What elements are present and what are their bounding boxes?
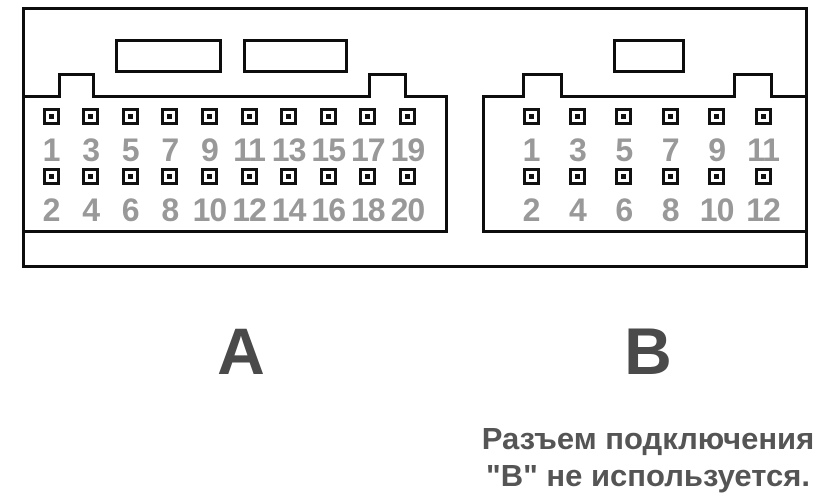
pin-b-1	[523, 108, 540, 125]
pin-b-12	[755, 168, 772, 185]
pin-b-9	[708, 108, 725, 125]
pin-b-6	[615, 168, 632, 185]
pin-b-5	[615, 108, 632, 125]
connector-a-latch-left	[58, 73, 95, 98]
pin-number-b-9: 9	[693, 134, 741, 166]
pin-a-19	[399, 108, 416, 125]
note-line-1: Разъем подключения	[448, 420, 833, 457]
pin-number-a-19: 19	[383, 134, 431, 166]
pin-number-b-3: 3	[553, 134, 601, 166]
pin-a-20	[399, 168, 416, 185]
connector-a-latch-right	[368, 73, 407, 98]
pin-a-13	[280, 108, 297, 125]
connector-a-label: A	[181, 318, 301, 384]
pin-b-2	[523, 168, 540, 185]
pin-b-4	[569, 168, 586, 185]
pin-a-2	[43, 168, 60, 185]
pin-a-8	[161, 168, 178, 185]
pin-number-b-10: 10	[693, 194, 741, 226]
pin-a-9	[201, 108, 218, 125]
connector-a-key-slot-2	[243, 39, 348, 73]
pin-a-7	[161, 108, 178, 125]
pin-a-10	[201, 168, 218, 185]
pin-a-3	[82, 108, 99, 125]
pin-number-b-12: 12	[739, 194, 787, 226]
pin-number-b-8: 8	[646, 194, 694, 226]
connector-b-latch-right	[733, 73, 773, 98]
pin-number-b-6: 6	[600, 194, 648, 226]
pin-a-11	[241, 108, 258, 125]
pin-b-10	[708, 168, 725, 185]
pin-number-a-20: 20	[383, 194, 431, 226]
pin-a-5	[122, 108, 139, 125]
pin-a-14	[280, 168, 297, 185]
note-text: Разъем подключения "В" не используется.	[448, 420, 833, 494]
pin-a-1	[43, 108, 60, 125]
pin-a-6	[122, 168, 139, 185]
pin-b-3	[569, 108, 586, 125]
pin-number-b-11: 11	[739, 134, 787, 166]
pin-b-11	[755, 108, 772, 125]
pin-a-15	[320, 108, 337, 125]
pin-a-12	[241, 168, 258, 185]
pin-a-16	[320, 168, 337, 185]
connector-b-label: B	[588, 318, 708, 384]
pin-number-b-1: 1	[507, 134, 555, 166]
pin-number-b-4: 4	[553, 194, 601, 226]
pin-b-7	[662, 108, 679, 125]
connector-a-key-slot-1	[115, 39, 222, 73]
pin-b-8	[662, 168, 679, 185]
connector-b-key-slot	[613, 39, 685, 73]
note-line-2: "В" не используется.	[448, 457, 833, 494]
pin-a-4	[82, 168, 99, 185]
pin-a-17	[359, 108, 376, 125]
pin-number-b-2: 2	[507, 194, 555, 226]
pin-number-b-7: 7	[646, 134, 694, 166]
pinout-diagram: A B Разъем подключения "В" не использует…	[0, 0, 833, 503]
connector-b-latch-left	[522, 73, 563, 98]
pin-a-18	[359, 168, 376, 185]
pin-number-b-5: 5	[600, 134, 648, 166]
